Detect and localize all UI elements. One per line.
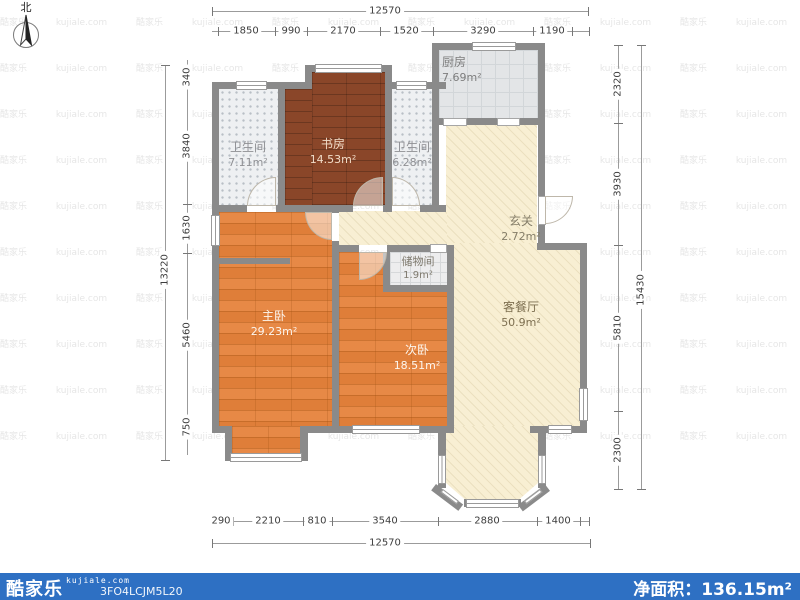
window — [466, 499, 519, 508]
room-area: 29.23m² — [251, 325, 298, 339]
brand-domain: kujiale.com — [66, 576, 130, 585]
net-area-label: 净面积： — [633, 580, 701, 600]
room-name: 主卧 — [251, 309, 298, 325]
window — [236, 81, 267, 90]
wall — [519, 118, 545, 125]
dim-label: 3930 — [613, 168, 624, 199]
wall — [332, 241, 339, 433]
wall — [332, 205, 339, 213]
wall — [332, 245, 359, 252]
dimension-line — [641, 45, 642, 489]
window — [548, 425, 572, 434]
door-panel — [430, 244, 447, 253]
dim-label: 1400 — [542, 516, 573, 527]
wall — [212, 82, 219, 433]
dim-label: 3840 — [182, 130, 193, 161]
dimension-tick — [614, 245, 623, 246]
dimension-tick — [589, 517, 590, 526]
room-area: 1.9m² — [402, 269, 435, 282]
room-label-master: 主卧 29.23m² — [251, 309, 298, 339]
dim-label: 1520 — [390, 26, 421, 37]
room-name: 卫生间 — [228, 140, 268, 156]
hallway-floor — [339, 211, 447, 245]
window — [352, 425, 420, 434]
dim-label: 3540 — [369, 516, 400, 527]
wall — [383, 285, 454, 292]
dimension-tick — [614, 45, 623, 46]
dimension-tick — [588, 7, 589, 16]
wall — [276, 205, 353, 212]
room-area: 50.9m² — [501, 316, 541, 330]
dimension-tick — [589, 27, 590, 36]
room-label-storage: 储物间 1.9m² — [402, 255, 435, 282]
room-area: 7.69m² — [442, 71, 482, 85]
dimension-line — [187, 60, 188, 455]
dim-label: 340 — [182, 64, 193, 89]
dimension-tick — [161, 460, 170, 461]
floor-plan: 卫生间 7.11m² 书房 14.53m² 卫生间 6.28m² 厨房 7.69… — [0, 0, 800, 600]
dimension-tick — [433, 27, 434, 36]
room-name: 书房 — [310, 137, 357, 153]
room-name: 厨房 — [442, 55, 482, 71]
dim-label: 810 — [304, 516, 329, 527]
room-label-entry: 玄关 2.72m² — [501, 214, 541, 244]
room-study-floor — [285, 89, 312, 206]
room-label-study: 书房 14.53m² — [310, 137, 357, 167]
room-name: 储物间 — [402, 255, 435, 269]
dimension-tick — [572, 27, 573, 36]
dimension-tick — [614, 123, 623, 124]
door-swing — [545, 196, 573, 224]
door-panel — [443, 118, 467, 126]
wall — [447, 245, 454, 433]
north-label: 北 — [6, 2, 46, 13]
dimension-tick — [637, 45, 646, 46]
dimension-tick — [614, 489, 623, 490]
room-name: 次卧 — [394, 343, 441, 359]
dimension-tick — [590, 539, 591, 548]
wall — [466, 118, 497, 125]
master-bay-floor — [232, 426, 300, 453]
dimension-tick — [212, 7, 213, 16]
dim-label: 2880 — [471, 516, 502, 527]
wall — [219, 258, 290, 264]
dim-label: 12570 — [366, 538, 404, 549]
wall — [420, 205, 446, 212]
dim-label: 3290 — [467, 26, 498, 37]
dim-label: 2210 — [252, 516, 283, 527]
window — [472, 42, 516, 51]
dimension-tick — [332, 517, 333, 526]
wall — [385, 65, 392, 212]
room-name: 卫生间 — [392, 140, 432, 156]
net-area-value: 136.15m² — [701, 580, 792, 600]
dim-label: 290 — [208, 516, 233, 527]
dimension-tick — [438, 517, 439, 526]
window — [211, 215, 220, 246]
dimension-tick — [380, 27, 381, 36]
dim-label: 5460 — [182, 319, 193, 350]
dimension-line — [618, 45, 619, 489]
dim-label: 1630 — [182, 212, 193, 243]
room-label-bed2: 次卧 18.51m² — [394, 343, 441, 373]
wall — [383, 205, 392, 212]
room-area: 2.72m² — [501, 230, 541, 244]
dimension-tick — [275, 27, 276, 36]
dim-label: 13220 — [160, 251, 171, 289]
dim-label: 12570 — [366, 6, 404, 17]
room-name: 玄关 — [501, 214, 541, 230]
dimension-tick — [537, 517, 538, 526]
wall — [387, 245, 430, 252]
room-area: 14.53m² — [310, 153, 357, 167]
brand-logo: 酷家乐 — [6, 575, 63, 600]
dim-label: 1190 — [536, 26, 567, 37]
wall — [432, 118, 443, 125]
plan-code: 3FO4LCJM5L20 — [100, 585, 183, 598]
wall — [432, 50, 439, 212]
room-label-living: 客餐厅 50.9m² — [501, 300, 541, 330]
room-name: 客餐厅 — [501, 300, 541, 316]
bay-window-floor — [446, 426, 538, 499]
room-living-floor — [454, 243, 580, 426]
dimension-tick — [533, 27, 534, 36]
window — [538, 455, 546, 484]
dim-label: 5810 — [613, 312, 624, 343]
dimension-tick — [637, 489, 646, 490]
room-label-bath2: 卫生间 6.28m² — [392, 140, 432, 170]
dim-label: 990 — [278, 26, 303, 37]
dim-label: 2320 — [613, 68, 624, 99]
room-area: 6.28m² — [392, 156, 432, 170]
footer-bar: 酷家乐 kujiale.com 3FO4LCJM5L20 净面积：136.15m… — [0, 573, 800, 600]
wall — [278, 82, 285, 212]
dimension-tick — [183, 204, 192, 205]
window — [230, 453, 302, 462]
window — [438, 455, 446, 484]
window — [579, 388, 588, 421]
dimension-tick — [307, 27, 308, 36]
dimension-tick — [580, 517, 581, 526]
dim-label: 2170 — [327, 26, 358, 37]
dim-label: 2300 — [613, 434, 624, 465]
dimension-tick — [161, 65, 170, 66]
dim-label: 1850 — [230, 26, 261, 37]
room-label-bath1: 卫生间 7.11m² — [228, 140, 268, 170]
dimension-tick — [183, 253, 192, 254]
dim-label: 750 — [182, 414, 193, 439]
dimension-tick — [212, 539, 213, 548]
north-indicator: 北 — [6, 2, 46, 53]
room-area: 7.11m² — [228, 156, 268, 170]
dim-label: 15430 — [636, 271, 647, 309]
room-area: 18.51m² — [394, 359, 441, 373]
window — [315, 64, 382, 73]
dimension-tick — [614, 411, 623, 412]
room-label-kitchen: 厨房 7.69m² — [442, 55, 482, 85]
floorplan-page: 酷家乐 kujiale.com 酷家乐 kujiale.com 酷家乐 kuji… — [0, 0, 800, 600]
north-arrow-icon — [8, 13, 44, 53]
net-area: 净面积：136.15m² — [633, 575, 792, 600]
door-panel — [497, 118, 520, 126]
window — [396, 81, 427, 90]
dimension-tick — [218, 27, 219, 36]
wall — [212, 205, 247, 212]
